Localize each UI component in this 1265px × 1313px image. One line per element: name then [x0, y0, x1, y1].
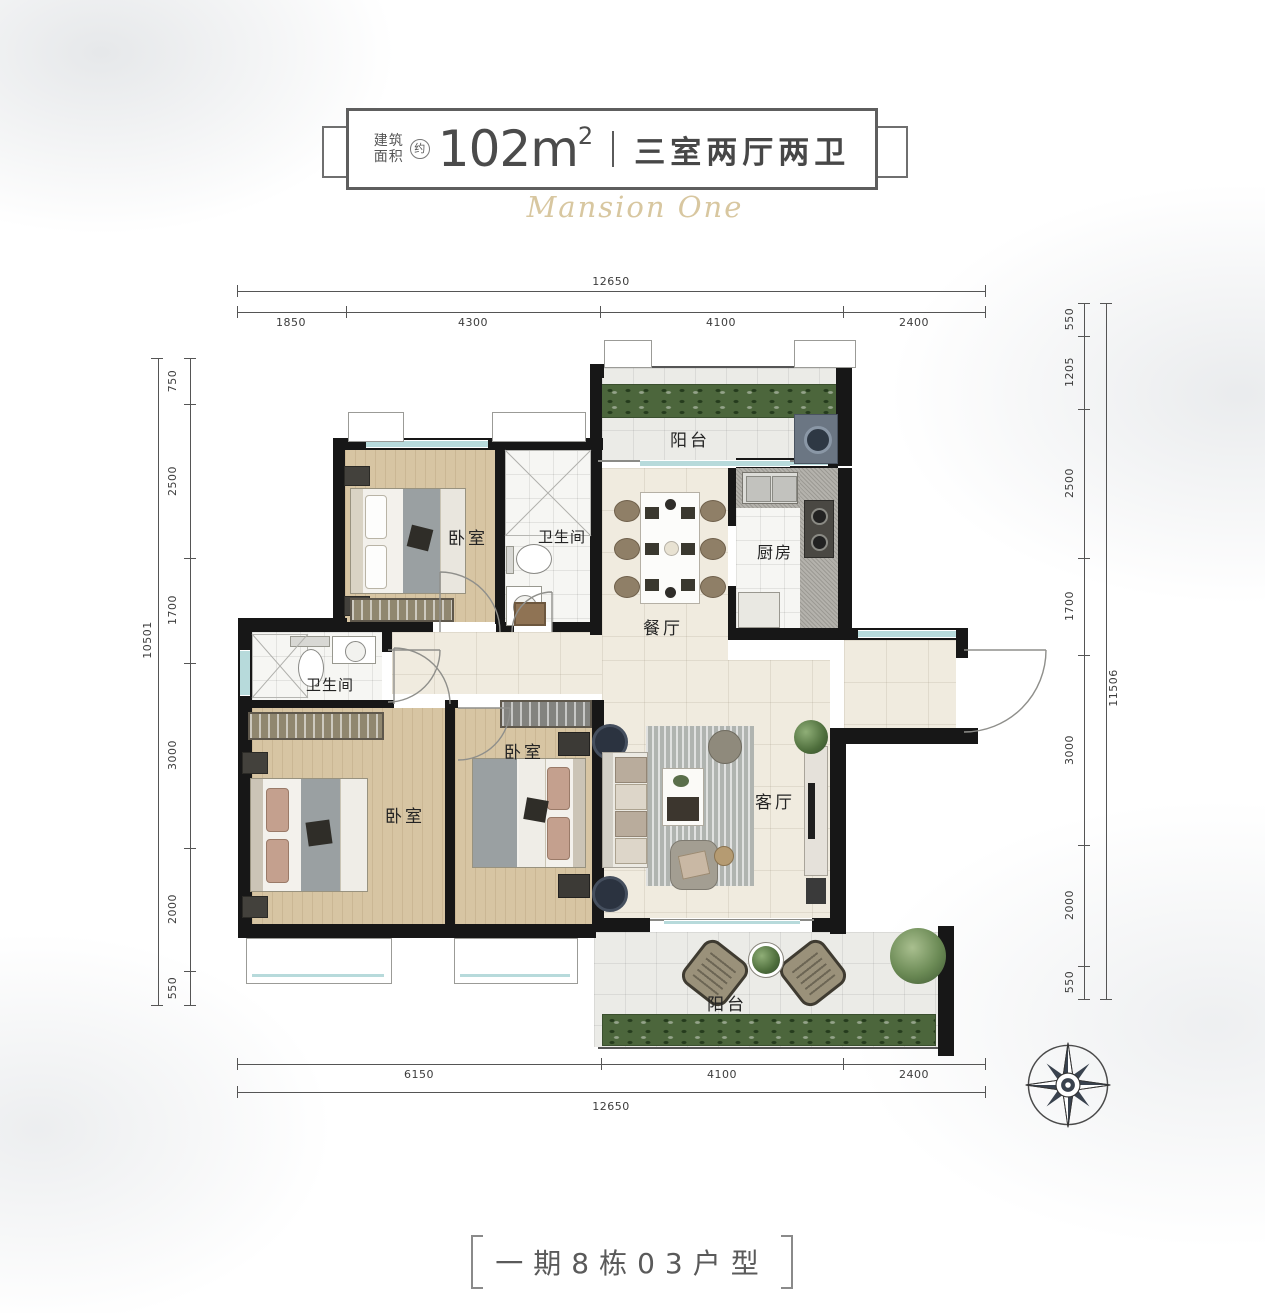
floorplan-page: 建筑 面积 约 102m2 三室两厅两卫 Mansion One 12650 1… [0, 0, 1265, 1313]
door-arc-overlay [0, 0, 1265, 1313]
